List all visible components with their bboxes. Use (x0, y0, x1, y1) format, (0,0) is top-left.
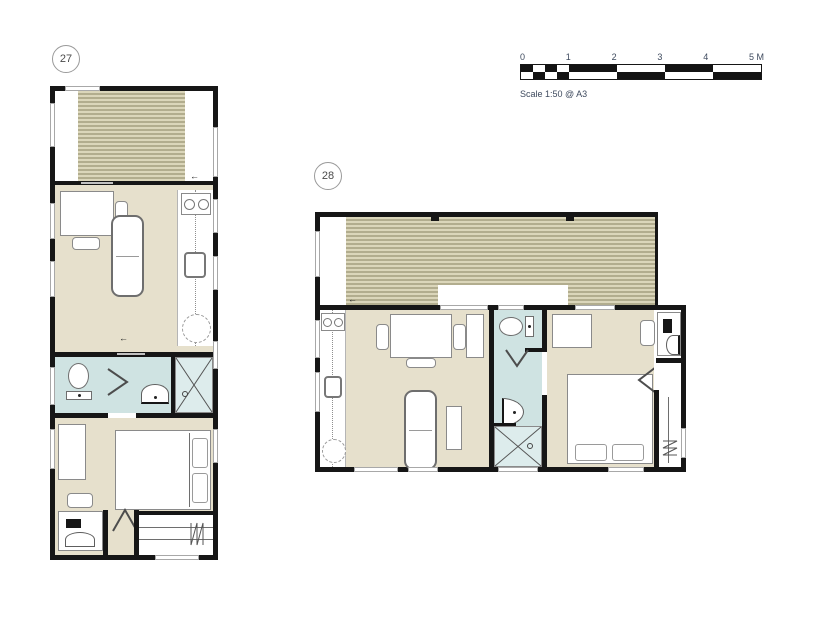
side-table-icon (446, 406, 462, 450)
window-icon (575, 305, 615, 310)
unit-28-label-bubble: 28 (314, 162, 342, 190)
scale-tick-label: 5 M (749, 52, 764, 62)
wardrobe-icon (552, 314, 592, 348)
lamp-icon (65, 532, 95, 547)
window-icon (681, 428, 686, 458)
round-table-icon (182, 314, 211, 343)
window-icon (315, 320, 320, 358)
toilet-icon (499, 316, 535, 338)
cabinet-icon (466, 314, 484, 358)
scale-tick-label: 2 (612, 52, 617, 62)
door-swing-icon (105, 367, 131, 397)
pillow-icon (192, 473, 208, 503)
unit-28-plan (315, 305, 686, 472)
toilet-icon (66, 363, 92, 403)
pillow-icon (192, 438, 208, 468)
kitchen-counter-27 (177, 190, 213, 346)
closet-28 (659, 395, 681, 467)
window-icon (213, 256, 218, 290)
shower-icon (494, 426, 542, 467)
unit-27-label: 27 (60, 53, 72, 65)
extension-wall (656, 358, 681, 363)
door-threshold (498, 305, 524, 310)
window-icon (50, 103, 55, 147)
entry-arrow-icon: ← (348, 295, 357, 304)
pillow-icon (612, 444, 644, 461)
window-icon (498, 467, 538, 472)
scale-caption: Scale 1:50 @ A3 (520, 89, 764, 99)
chair-icon (72, 237, 100, 250)
scale-tick-label: 3 (657, 52, 662, 62)
window-icon (65, 86, 100, 91)
chair-icon (453, 324, 466, 350)
window-icon (213, 429, 218, 463)
kitchen-sink-icon (181, 193, 211, 215)
sofa-icon (111, 215, 144, 297)
scale-bar-labels: 0 1 2 3 4 5 M (520, 52, 764, 62)
desk-icon (60, 191, 114, 236)
unit-28-label: 28 (322, 170, 334, 182)
laptop-icon (66, 519, 81, 528)
window-icon (213, 341, 218, 369)
wardrobe-icon (58, 424, 86, 480)
window-icon (315, 231, 320, 277)
mirror-icon (666, 335, 680, 355)
window-icon (315, 372, 320, 412)
unit-28-deck: ← (315, 212, 658, 308)
window-icon (50, 429, 55, 469)
sofa-icon (404, 390, 437, 470)
wash-basin-icon (141, 384, 169, 404)
deck-landing (438, 285, 568, 305)
window-icon (608, 467, 644, 472)
hangers-icon (189, 521, 205, 547)
chair-icon (640, 320, 655, 346)
hob-icon (184, 252, 206, 278)
deck-post (431, 217, 439, 221)
laptop-icon (663, 319, 672, 333)
chair-icon (406, 358, 436, 368)
scale-tick-label: 0 (520, 52, 525, 62)
hangers-icon (661, 439, 679, 457)
door-swing-icon (504, 348, 530, 370)
deck-post (566, 217, 574, 221)
closet-27 (139, 515, 213, 555)
door-threshold (440, 305, 488, 310)
hob-icon (324, 376, 342, 398)
scale-bar-graphic (520, 64, 762, 80)
dressing-table-icon (58, 511, 103, 551)
shower-icon (175, 357, 213, 413)
unit-27-plan: ← ← (50, 86, 218, 560)
window-icon (50, 367, 55, 405)
scale-tick-label: 1 (566, 52, 571, 62)
kitchen-sink-icon (321, 313, 345, 331)
dining-table-icon (390, 314, 452, 358)
deck-door-threshold (81, 182, 113, 184)
chair-icon (376, 324, 389, 350)
window-icon (50, 261, 55, 297)
window-icon (50, 203, 55, 239)
scale-bar: 0 1 2 3 4 5 M Scale 1:50 @ A3 (520, 52, 764, 99)
unit-27-label-bubble: 27 (52, 45, 80, 73)
entry-arrow-icon: ← (190, 172, 199, 181)
window-icon (408, 467, 438, 472)
door-threshold (117, 353, 145, 355)
dressing-table-icon (657, 312, 681, 356)
window-icon (213, 199, 218, 233)
chair-icon (67, 493, 93, 508)
window-icon (213, 127, 218, 177)
pillow-icon (575, 444, 607, 461)
floor-plan-sheet: 27 ← ← (0, 0, 826, 620)
deck-boards-icon (78, 91, 185, 181)
kitchen-counter-28 (320, 310, 346, 467)
entry-arrow-icon: ← (119, 334, 128, 343)
scale-tick-label: 4 (703, 52, 708, 62)
round-table-icon (322, 439, 346, 463)
window-icon (155, 555, 199, 560)
window-icon (354, 467, 398, 472)
entry-wall (103, 510, 108, 555)
